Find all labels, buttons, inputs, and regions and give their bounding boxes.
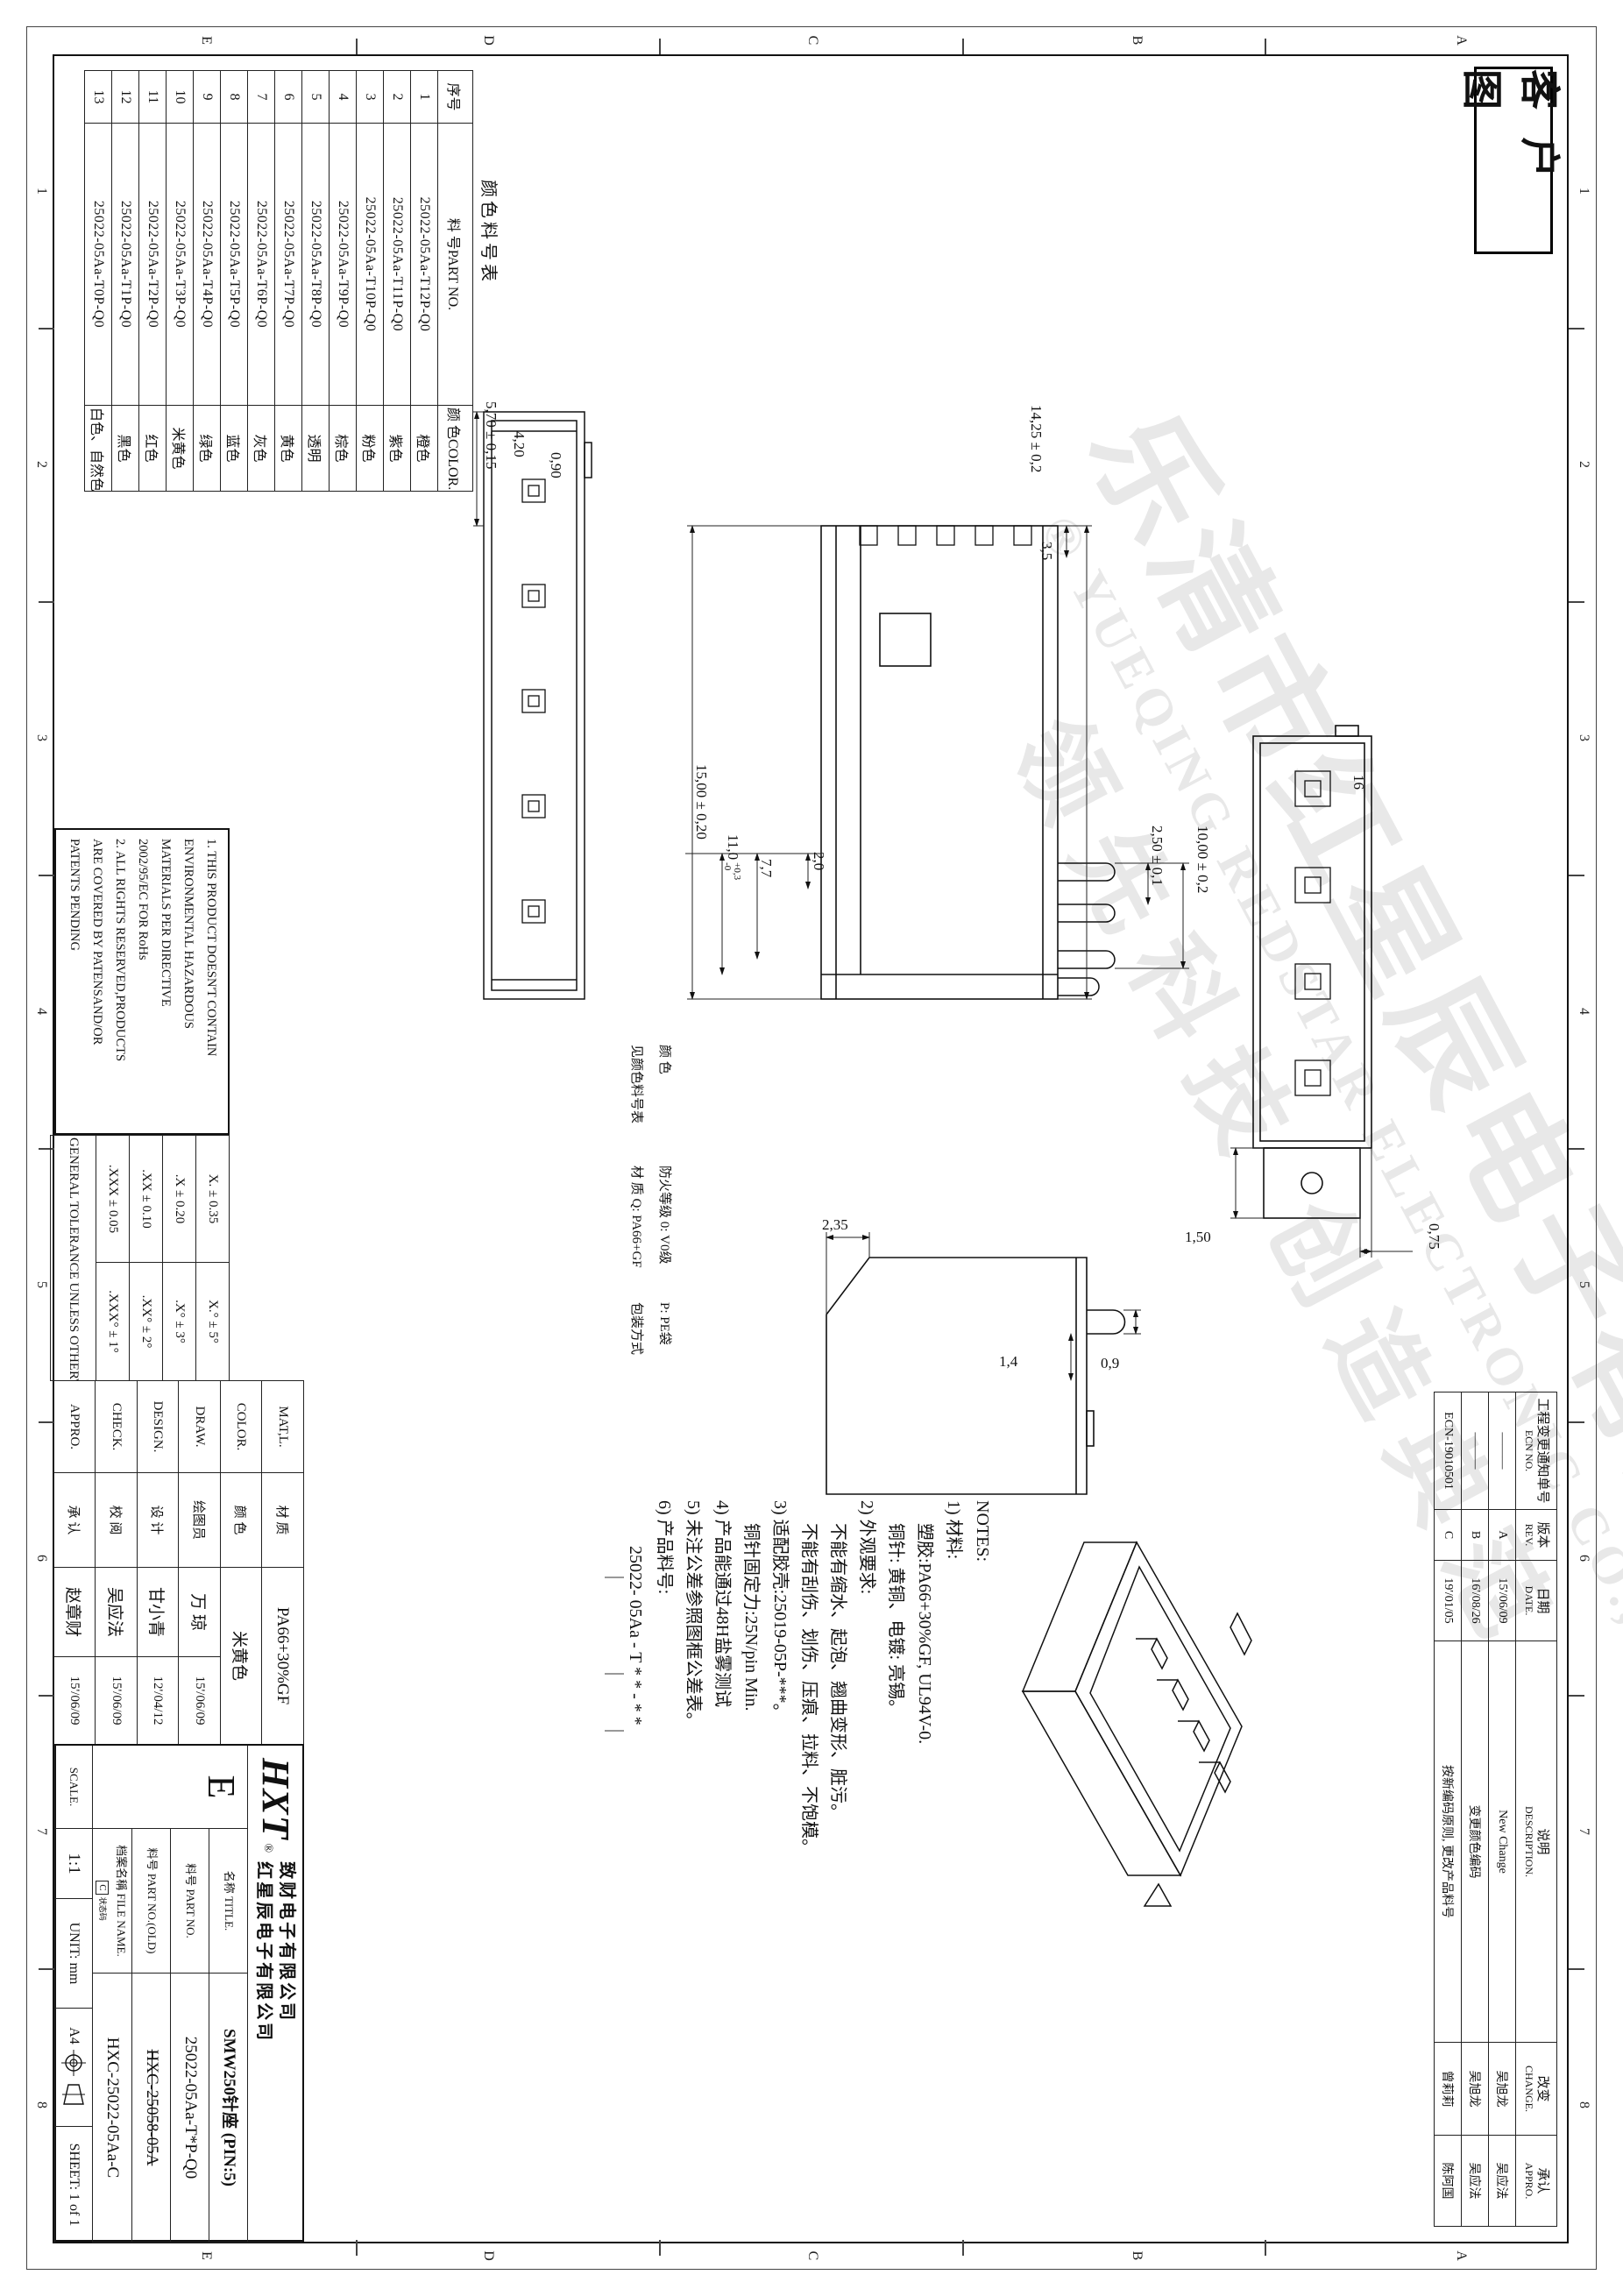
color-row: 525022-05Aa-T8P-Q0透明 — [302, 71, 330, 492]
zone-col: 4 — [33, 1001, 49, 1022]
ann-color-ref: 见颜色料号表 — [628, 1045, 647, 1123]
note-line: 25022- 05Aa - T * * - * * — [620, 1500, 649, 1912]
zone-tick — [39, 1968, 54, 1970]
zone-row: B — [1129, 30, 1145, 51]
zone-row: D — [480, 2245, 496, 2266]
file-status-tag-label: 状态码 — [98, 1897, 107, 1921]
ecn-row: ——— B 16'/08/26 变更颜色编码 吴旭龙 吴应法 — [1462, 1392, 1489, 2227]
ecn-date: 19'/01/05 — [1435, 1561, 1462, 1641]
ecn-rev: A — [1489, 1510, 1516, 1561]
rohs-line: 2. ALL RIGHTS RESERVED,PRODUCTS — [109, 839, 131, 1133]
zone-col: 5 — [33, 1274, 49, 1295]
signature-block: MAT,L.材 质 PA66+30%GF COLOR.颜 色 米黄色 DRAW.… — [53, 1380, 304, 1745]
color-row: 325022-05Aa-T10P-Q0粉色 — [357, 71, 384, 492]
tol-row: .X ± 0.20.X° ± 3° — [163, 1136, 196, 1381]
unit-cell: UNIT: mm — [54, 1899, 92, 2009]
zone-col: 7 — [33, 1821, 49, 1842]
color-row: 1025022-05Aa-T3P-Q0米黄色 — [167, 71, 194, 492]
zone-tick — [1265, 39, 1267, 54]
drawing-sheet: 乐清市红星辰电子有限公司 ® YUEQING REDSTAR ELECTRONI… — [0, 0, 1623, 2296]
projection-cone-icon — [63, 2081, 86, 2108]
ecn-header: 承认APPRO. — [1516, 2136, 1557, 2227]
screenshot-viewport: 乐清市红星辰电子有限公司 ® YUEQING REDSTAR ELECTRONI… — [0, 0, 1623, 2296]
company-name-line2: 红星辰电子有限公司 — [252, 1861, 275, 2043]
old-part-no-value: HXC-25058-05A — [131, 1974, 170, 2243]
doc-block: HXT ® 致财电子有限公司 红星辰电子有限公司 E 名称 TITLE. SMW… — [54, 1744, 304, 2242]
note-line: 铜针固定力:25N/pin Min. — [736, 1500, 765, 1912]
stamp-text: 客 户 图 — [1456, 69, 1571, 252]
zone-row: C — [804, 30, 820, 51]
zone-tick — [1569, 328, 1584, 330]
sig-row: COLOR.颜 色 米黄色 — [221, 1381, 262, 1745]
zone-tick — [357, 39, 358, 54]
rohs-line: ENVIRONMENTAL HAZARDOUS — [177, 839, 200, 1133]
ecn-header: 工程变更通知单号ECN NO. — [1516, 1392, 1557, 1510]
dim-7-7: 7,7 — [757, 859, 775, 877]
projection-circle-icon — [61, 2048, 88, 2078]
zone-col: 1 — [1576, 181, 1591, 202]
brand-logo-text: HXT — [256, 1758, 294, 1839]
sheet-cell: SHEET: 1 of 1 — [54, 2127, 92, 2243]
part-no-label: 料号 PART NO. — [170, 1829, 209, 1974]
zone-row: A — [1453, 2245, 1469, 2266]
ecn-header: 说明DESCRIPTION. — [1516, 1641, 1557, 2043]
note-line: NOTES: — [967, 1500, 996, 1912]
dim-5-70: 5,70 ± 0,15 — [482, 401, 500, 469]
zone-tick — [1569, 1968, 1584, 1970]
view-isometric — [1001, 1507, 1290, 1928]
scale-label: SCALE. — [54, 1746, 92, 1829]
zone-col: 6 — [1576, 1548, 1591, 1569]
tol-footer-row: GENERAL TOLERANCE UNLESS OTHERWISE NOTED — [51, 1136, 96, 1381]
view-top — [449, 386, 615, 1017]
ann-pack-label: 包装方式 — [628, 1302, 647, 1355]
zone-col: 8 — [33, 2094, 49, 2115]
rohs-line: 2002/95/EC FOR RoHs — [131, 839, 154, 1133]
rohs-line: MATERIALS PER DIRECTIVE — [154, 839, 177, 1133]
note-line: 不能有刮伤、划伤、压痕、拉料、不饱模。 — [794, 1500, 823, 1912]
zone-tick — [39, 1421, 54, 1423]
zone-row: A — [1453, 30, 1469, 51]
dim-0-75: 0,75 — [1425, 1223, 1442, 1250]
title-value: SMW250针座 (PIN:5) — [209, 1974, 247, 2243]
ecn-row: ——— A 15'/06/09 New Change 吴旭龙 吴应法 — [1489, 1392, 1516, 2227]
part-no-value: 25022-05Aa-T*P-Q0 — [170, 1974, 209, 2243]
zone-tick — [1569, 1148, 1584, 1150]
dim-2-35: 2,35 — [822, 1216, 848, 1234]
zone-col: 3 — [1576, 727, 1591, 748]
zone-tick — [660, 39, 662, 54]
zone-tick — [39, 601, 54, 603]
ecn-desc: New Change — [1489, 1641, 1516, 2043]
notes-block: NOTES: 1) 材料: 塑胶:PA66+30%GF, UL94V-0. 铜针… — [620, 1500, 996, 1912]
dim-2-0: 2,0 — [810, 852, 827, 870]
zone-col: 7 — [1576, 1821, 1591, 1842]
ecn-appro: 吴应法 — [1462, 2136, 1489, 2227]
ecn-header: 改变CHANGE. — [1516, 2043, 1557, 2136]
customer-drawing-stamp: 客 户 图 — [1474, 67, 1553, 254]
zone-col: 2 — [1576, 454, 1591, 475]
zone-tick — [1569, 1421, 1584, 1423]
rohs-line: ARE COVERED BY PATENSAND/OR — [86, 839, 109, 1133]
company-logo: HXT ® 致财电子有限公司 红星辰电子有限公司 — [247, 1746, 302, 2243]
old-part-no-label: 料号 PART NO.(OLD) — [131, 1829, 170, 1974]
ecn-date: 16'/08/26 — [1462, 1561, 1489, 1641]
note-line: 6) 产品料号: — [649, 1500, 678, 1912]
ann-color-label: 颜 色 — [656, 1045, 675, 1074]
sig-row: MAT,L.材 质 PA66+30%GF — [262, 1381, 304, 1745]
company-name-line1: 致财电子有限公司 — [275, 1861, 298, 2043]
color-header-no: 序号 — [438, 71, 473, 124]
zone-tick — [39, 328, 54, 330]
sig-row: DESIGN.设 计 甘小青12'/04/12 — [138, 1381, 179, 1745]
color-header-part: 料 号PART NO. — [438, 124, 473, 406]
zone-tick — [39, 875, 54, 876]
view-front — [668, 386, 1237, 1034]
ecn-desc: 变更颜色编码 — [1462, 1641, 1489, 2043]
note-line: 4) 产品能通过48H盐雾测试 — [707, 1500, 736, 1912]
color-row: 225022-05Aa-T11P-Q0紫色 — [384, 71, 411, 492]
annotation-leader-lines — [598, 1542, 624, 1770]
note-line: 3) 适配胶壳:25019-05P-***。 — [765, 1500, 794, 1912]
zone-tick — [39, 1695, 54, 1697]
color-row: 125022-05Aa-T12P-Q0橙色 — [411, 71, 438, 492]
dim-0-90: 0,90 — [547, 452, 564, 478]
color-table-title: 颜色料号表 — [478, 180, 503, 285]
ecn-rev: C — [1435, 1510, 1462, 1561]
color-row: 1125022-05Aa-T2P-Q0红色 — [139, 71, 167, 492]
rohs-note: 1. THIS PRODUCT DOESN'T CONTAIN ENVIRONM… — [54, 828, 230, 1135]
ecn-table: 工程变更通知单号ECN NO. 版本REV. 日期DATE. 说明DESCRIP… — [1434, 1392, 1557, 2227]
dim-1-50: 1,50 — [1185, 1229, 1211, 1246]
dim-2-50: 2,50 ± 0,1 — [1148, 826, 1166, 886]
zone-row: B — [1129, 2245, 1145, 2266]
zone-col: 1 — [33, 181, 49, 202]
sheet-size-cell: E — [92, 1746, 247, 1829]
sig-row: APPRO.承 认 赵章财15'/06/09 — [54, 1381, 96, 1745]
ecn-header: 版本REV. — [1516, 1510, 1557, 1561]
file-status-tag: C — [96, 1881, 109, 1894]
file-name-label: 档案名稱 FILE NAME. C 状态码 — [92, 1829, 131, 1974]
dim-0-9: 0,9 — [1101, 1355, 1119, 1372]
ecn-date: 15'/06/09 — [1489, 1561, 1516, 1641]
zone-col: 6 — [33, 1548, 49, 1569]
zone-col: 8 — [1576, 2094, 1591, 2115]
ecn-header-row: 工程变更通知单号ECN NO. 版本REV. 日期DATE. 说明DESCRIP… — [1516, 1392, 1557, 2227]
scale-value: 1:1 — [54, 1829, 92, 1899]
zone-col: 5 — [1576, 1274, 1591, 1295]
sheet-size: E — [200, 1775, 243, 1799]
ecn-row: ECN-19010501 C 19'/01/05 按新编码原则, 更改产品料号 … — [1435, 1392, 1462, 2227]
ecn-desc: 按新编码原则, 更改产品料号 — [1435, 1641, 1462, 2043]
color-row: 425022-05Aa-T9P-Q0棕色 — [330, 71, 357, 492]
ann-fire-rating: 防火等级 0: V0级 — [656, 1166, 675, 1265]
note-line: 5) 未注公差参照图框公差表。 — [678, 1500, 707, 1912]
zone-tick — [1265, 2240, 1267, 2256]
color-table: 序号 料 号PART NO. 颜 色COLOR. 125022-05Aa-T12… — [84, 70, 473, 492]
sig-row: DRAW.绘图员 万 琼15'/06/09 — [179, 1381, 221, 1745]
zone-col: 4 — [1576, 1001, 1591, 1022]
tol-row: .XXX ± 0.05.XXX° ± 1° — [96, 1136, 130, 1381]
ecn-header: 日期DATE. — [1516, 1561, 1557, 1641]
zone-row: E — [198, 30, 214, 51]
ecn-no: ——— — [1462, 1392, 1489, 1510]
note-line: 不能有缩水、起泡、翘曲变形、脏污。 — [823, 1500, 852, 1912]
color-row: 925022-05Aa-T4P-Q0绿色 — [194, 71, 221, 492]
ecn-change: 吴旭龙 — [1489, 2043, 1516, 2136]
ecn-no: ECN-19010501 — [1435, 1392, 1462, 1510]
color-row: 725022-05Aa-T6P-Q0灰色 — [248, 71, 275, 492]
ecn-change: 吴旭龙 — [1462, 2043, 1489, 2136]
dim-16: 16 — [1350, 775, 1367, 790]
tol-footer: GENERAL TOLERANCE UNLESS OTHERWISE NOTED — [51, 1136, 96, 1381]
zone-tick — [357, 2240, 358, 2256]
zone-tick — [1569, 875, 1584, 876]
paper-cell: A4 — [54, 2009, 92, 2127]
file-name-value: HXC-25022-05Aa-C — [92, 1974, 131, 2243]
dim-1-4: 1,4 — [999, 1353, 1017, 1371]
ann-material: 材 质 Q: PA66+GF — [628, 1166, 647, 1268]
tol-row: .XX ± 0.10.XX° ± 2° — [130, 1136, 163, 1381]
zone-tick — [660, 2240, 662, 2256]
registered-mark-icon: ® — [260, 1843, 274, 1853]
dim-3-5: 3,5 — [1038, 542, 1055, 560]
rohs-line: PATENTS PENDING — [63, 839, 86, 1133]
zone-tick — [1569, 1695, 1584, 1697]
zone-row: E — [198, 2245, 214, 2266]
tol-row: X. ± 0.35X.° ± 5° — [196, 1136, 230, 1381]
color-row: 825022-05Aa-T5P-Q0蓝色 — [221, 71, 248, 492]
zone-row: D — [480, 30, 496, 51]
color-row: 1325022-05Aa-T0P-Q0白色、自然色 — [85, 71, 112, 492]
title-label: 名称 TITLE. — [209, 1829, 247, 1974]
tolerance-table: X. ± 0.35X.° ± 5° .X ± 0.20.X° ± 3° .XX … — [50, 1135, 230, 1381]
zone-col: 2 — [33, 454, 49, 475]
dim-14-25: 14,25 ± 0,2 — [1027, 405, 1045, 472]
color-row: 625022-05Aa-T7P-Q0黄色 — [275, 71, 302, 492]
note-line: 1) 材料: — [939, 1500, 967, 1912]
dim-15-00: 15,00 ± 0,20 — [692, 764, 710, 840]
view-side — [1202, 710, 1465, 1271]
zone-tick — [1569, 601, 1584, 603]
ecn-no: ——— — [1489, 1392, 1516, 1510]
sig-row: CHECK.校 阅 吴应法15'/06/09 — [96, 1381, 138, 1745]
ecn-appro: 吴应法 — [1489, 2136, 1516, 2227]
color-row: 1225022-05Aa-T1P-Q0黑色 — [112, 71, 139, 492]
dim-11-0: 11,0+0,3-0 — [722, 834, 741, 880]
dim-4-20: 4,20 — [510, 431, 528, 457]
zone-row: C — [804, 2245, 820, 2266]
paper-size: A4 — [67, 2027, 82, 2044]
ann-pack-value: P: PE袋 — [656, 1302, 675, 1345]
note-line: 塑胶:PA66+30%GF, UL94V-0. — [910, 1500, 939, 1912]
note-line: 铜针: 黄铜、电镀: 亮锡。 — [881, 1500, 910, 1912]
ecn-change: 曾莉莉 — [1435, 2043, 1462, 2136]
zone-tick — [963, 39, 965, 54]
rohs-line: 1. THIS PRODUCT DOESN'T CONTAIN — [200, 839, 223, 1133]
note-line: 2) 外观要求: — [852, 1500, 881, 1912]
zone-tick — [963, 2240, 965, 2256]
ecn-rev: B — [1462, 1510, 1489, 1561]
zone-col: 3 — [33, 727, 49, 748]
ecn-appro: 陈阿国 — [1435, 2136, 1462, 2227]
